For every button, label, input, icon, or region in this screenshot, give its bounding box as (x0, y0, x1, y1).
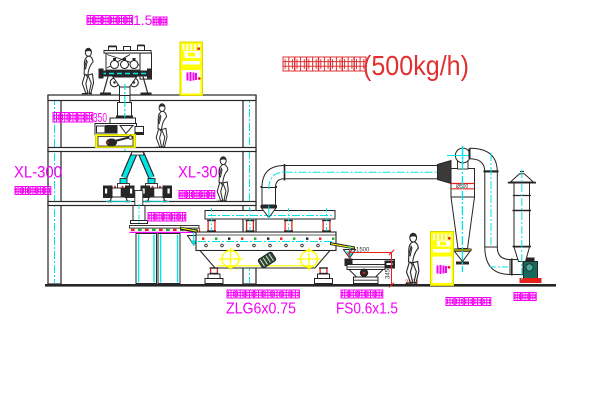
svg-text:XL-300: XL-300 (14, 163, 62, 182)
svg-text:ZLG6x0.75: ZLG6x0.75 (226, 301, 296, 318)
svg-text:FS0.6x1.5: FS0.6x1.5 (336, 301, 398, 318)
svg-text:1500: 1500 (356, 248, 370, 254)
svg-text:345: 345 (386, 268, 392, 279)
svg-text:350: 350 (93, 111, 107, 125)
svg-text:(500kg/h): (500kg/h) (363, 50, 469, 81)
svg-text:1.5: 1.5 (133, 12, 153, 28)
